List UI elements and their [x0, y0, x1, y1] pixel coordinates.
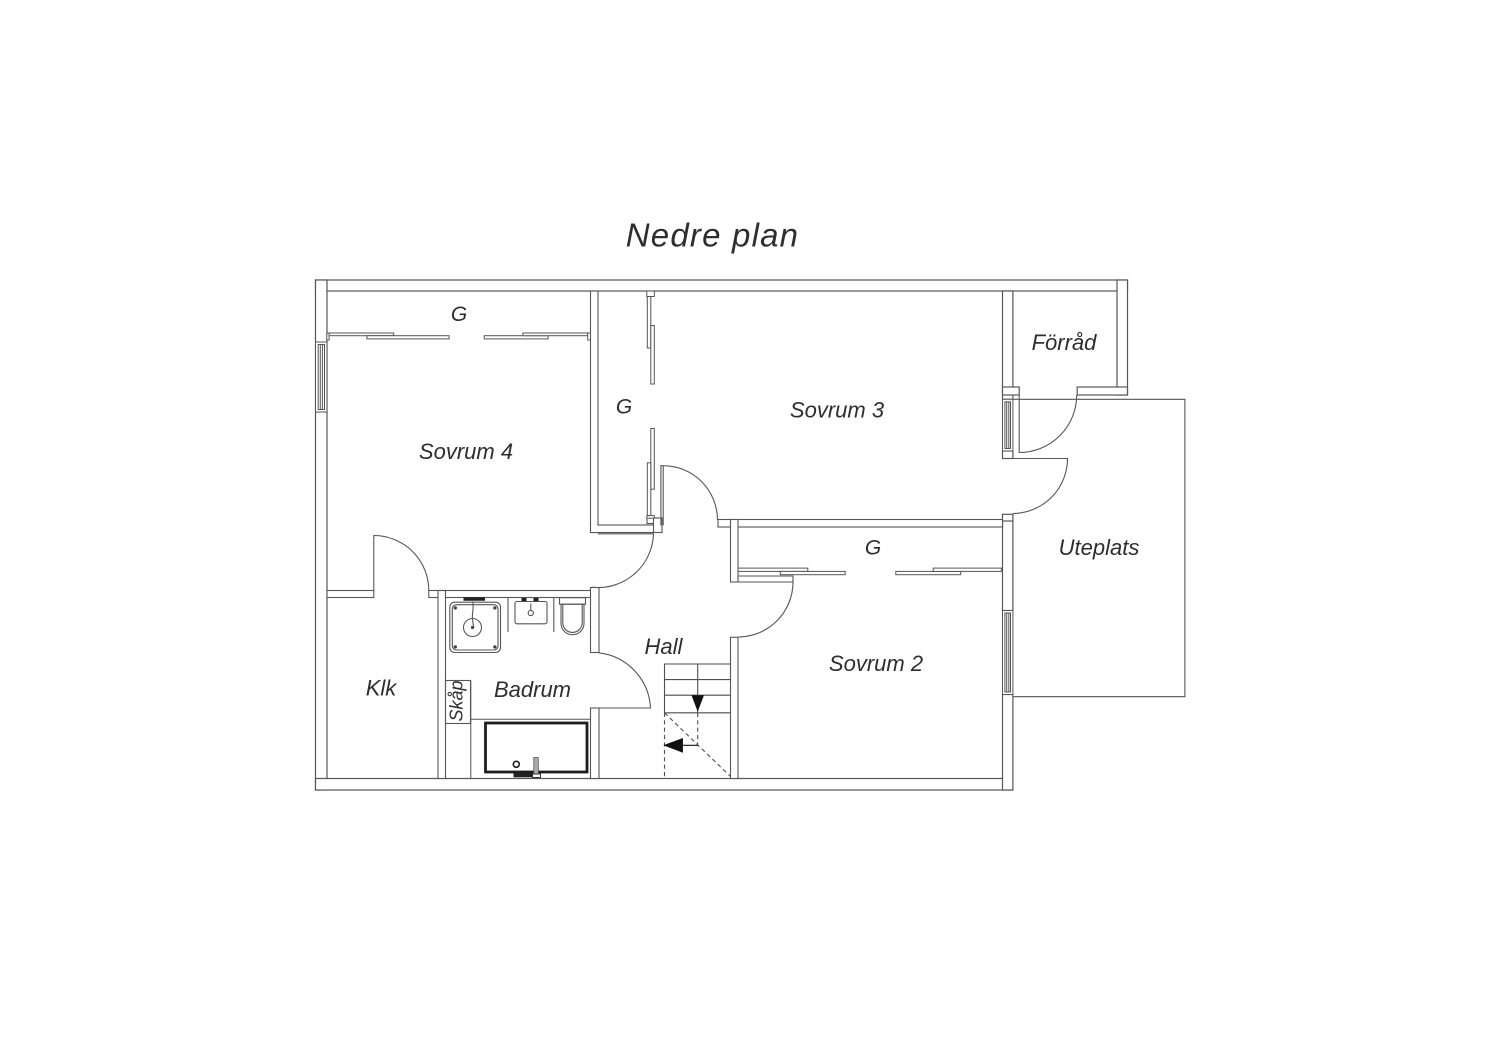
svg-text:Nedre plan: Nedre plan [626, 217, 799, 254]
svg-text:Skåp: Skåp [447, 680, 467, 721]
svg-text:Förråd: Förråd [1032, 330, 1098, 355]
svg-text:Hall: Hall [645, 634, 684, 659]
svg-text:G: G [616, 396, 632, 419]
svg-text:Sovrum 4: Sovrum 4 [419, 439, 513, 464]
svg-text:G: G [865, 537, 881, 560]
svg-text:Uteplats: Uteplats [1059, 535, 1140, 560]
svg-text:Sovrum 3: Sovrum 3 [790, 398, 885, 423]
svg-text:Klk: Klk [366, 676, 398, 701]
svg-text:Sovrum 2: Sovrum 2 [829, 651, 923, 676]
svg-text:G: G [451, 303, 467, 326]
svg-text:Badrum: Badrum [494, 677, 571, 702]
